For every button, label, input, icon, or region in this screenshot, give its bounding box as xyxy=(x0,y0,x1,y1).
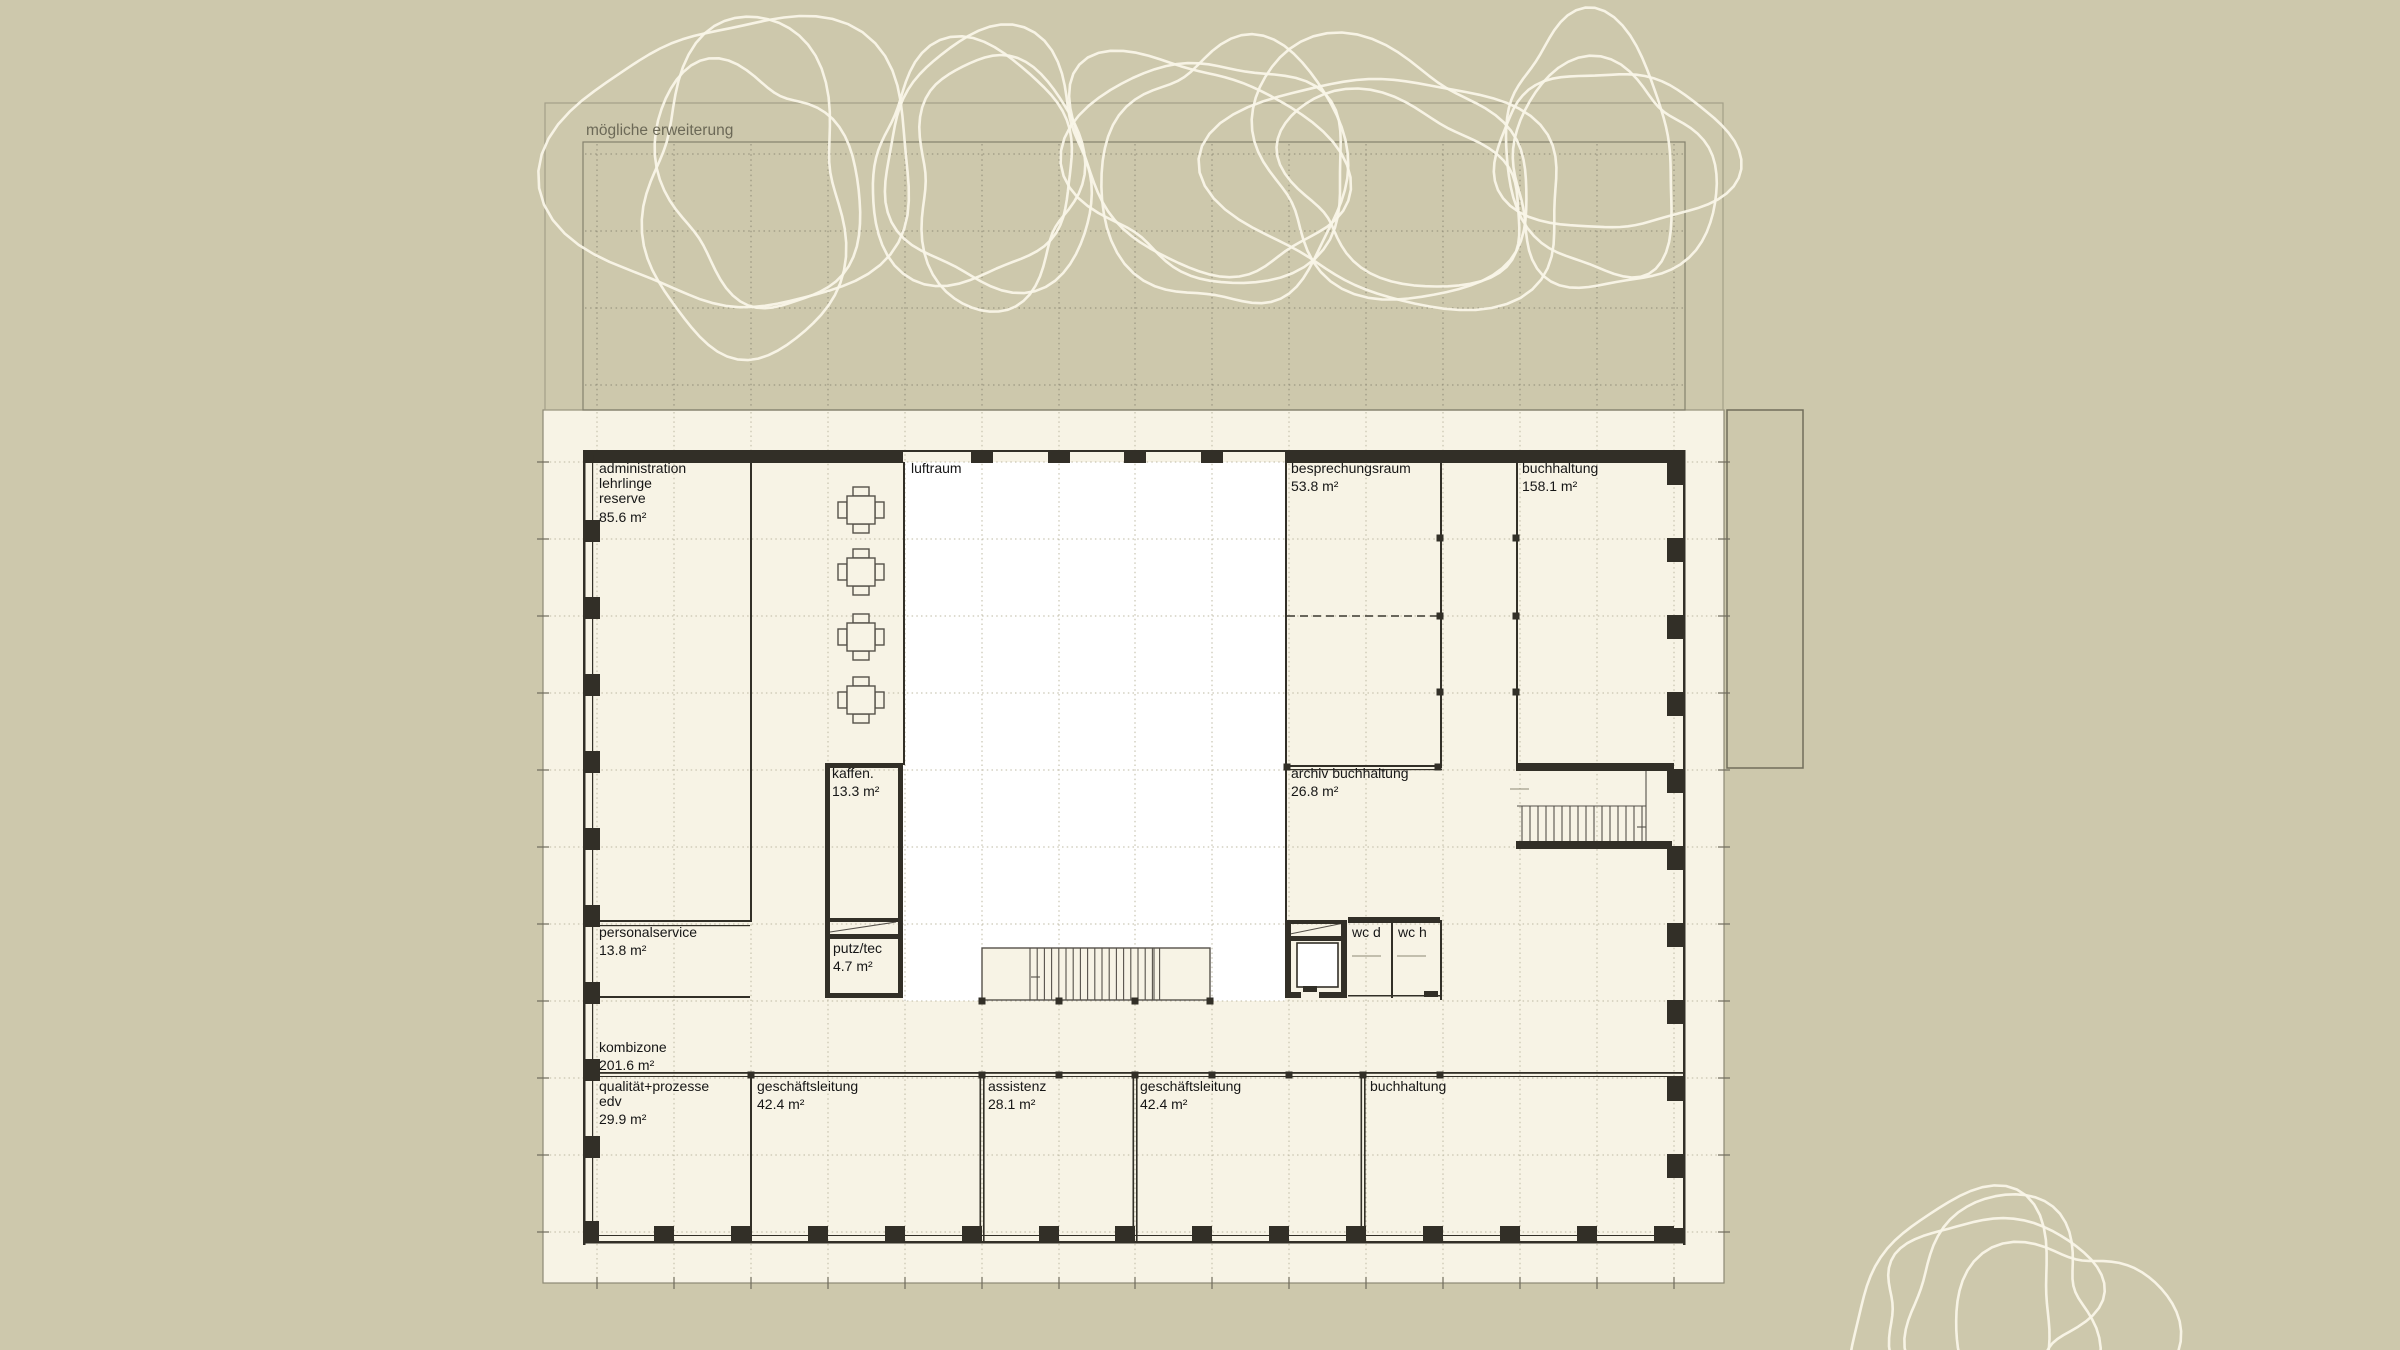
wall xyxy=(1115,1226,1135,1242)
room-name: buchhaltung xyxy=(1370,1079,1446,1094)
room-label-archiv-buchhaltung: archiv buchhaltung 26.8 m² xyxy=(1291,766,1409,799)
wall xyxy=(1435,764,1442,771)
wall xyxy=(584,751,600,773)
wall xyxy=(584,1059,600,1081)
room-name: wc h xyxy=(1398,925,1427,940)
wall xyxy=(748,1072,755,1079)
chair-icon xyxy=(853,677,869,686)
wall xyxy=(1440,920,1442,1000)
wall xyxy=(903,450,1285,452)
wall xyxy=(1516,841,1672,849)
room-label-assistenz: assistenz 28.1 m² xyxy=(988,1079,1046,1112)
wall xyxy=(583,1221,599,1242)
chair-icon xyxy=(875,629,884,645)
chair-icon xyxy=(838,502,847,518)
wall xyxy=(1303,986,1317,992)
chair-icon xyxy=(853,714,869,723)
wall xyxy=(980,1075,982,1243)
room-area-value: 53.8 m² xyxy=(1291,479,1411,494)
tree-scribble xyxy=(1277,89,1520,287)
wall xyxy=(1667,538,1684,562)
tree-scribble xyxy=(919,55,1085,312)
wall xyxy=(750,462,752,922)
wall xyxy=(1192,1226,1212,1242)
wall xyxy=(584,674,600,696)
wall xyxy=(1667,846,1684,870)
wall xyxy=(979,998,986,1005)
wall xyxy=(1360,1072,1367,1079)
wall xyxy=(1654,1226,1674,1242)
chair-icon xyxy=(838,564,847,580)
room-name: kombizone xyxy=(599,1040,667,1055)
wall xyxy=(1667,923,1684,947)
wall xyxy=(1285,920,1347,924)
wall xyxy=(1667,1154,1684,1178)
room-area-value: 42.4 m² xyxy=(757,1097,858,1112)
room-label-personalservice: personalservice 13.8 m² xyxy=(599,925,697,958)
wall xyxy=(1423,1226,1443,1242)
wall xyxy=(825,918,903,922)
tree-scribble xyxy=(1849,1185,2050,1350)
table-icon xyxy=(847,558,875,586)
wall xyxy=(1513,535,1520,542)
wall xyxy=(1361,1075,1363,1243)
room-name: kaffen. xyxy=(832,766,879,781)
room-label-geschaeftsleitung-rechts: geschäftsleitung 42.4 m² xyxy=(1140,1079,1241,1112)
extension-outer-outline xyxy=(545,103,1723,410)
wall xyxy=(1667,1000,1684,1024)
chair-icon xyxy=(853,549,869,558)
wall xyxy=(1285,922,1291,998)
wall xyxy=(1667,769,1684,793)
wall xyxy=(1513,689,1520,696)
wall xyxy=(971,450,993,463)
wall xyxy=(1286,1072,1293,1079)
wall xyxy=(808,1226,828,1242)
wall xyxy=(731,1226,751,1242)
chair-icon xyxy=(875,564,884,580)
extension-label: mögliche erweiterung xyxy=(586,122,733,140)
wall xyxy=(1437,535,1444,542)
chair-icon xyxy=(838,692,847,708)
wall xyxy=(1132,998,1139,1005)
room-label-luftraum: luftraum xyxy=(911,461,962,476)
room-area-value: 13.8 m² xyxy=(599,943,697,958)
room-name: besprechungsraum xyxy=(1291,461,1411,476)
room-label-qualitaet-prozesse-edv: qualität+prozesse edv 29.9 m² xyxy=(599,1079,709,1128)
wall xyxy=(1437,613,1444,620)
room-name: luftraum xyxy=(911,461,962,476)
room-name: geschäftsleitung xyxy=(757,1079,858,1094)
room-area-value: 29.9 m² xyxy=(599,1112,709,1127)
table-icon xyxy=(847,496,875,524)
wall xyxy=(1667,461,1684,485)
annex-outline xyxy=(1727,410,1803,768)
chair-icon xyxy=(853,586,869,595)
wall xyxy=(584,520,600,542)
wall xyxy=(1285,992,1301,998)
wall xyxy=(1201,450,1223,463)
wall xyxy=(1667,615,1684,639)
wall xyxy=(983,1075,985,1243)
wall xyxy=(1577,1226,1597,1242)
wall xyxy=(979,1072,986,1079)
floor-plan-drawing xyxy=(0,0,2400,1350)
wall xyxy=(1516,763,1674,771)
wall xyxy=(583,996,750,998)
wall xyxy=(1348,917,1440,923)
room-area-value: 158.1 m² xyxy=(1522,479,1598,494)
room-label-administration: administration lehrlinge reserve 85.6 m² xyxy=(599,461,686,525)
elevator-cab-icon xyxy=(1297,943,1338,987)
wall xyxy=(885,1226,905,1242)
floor-plan-canvas: mögliche erweiterung administration lehr… xyxy=(0,0,2400,1350)
wall xyxy=(1667,1077,1684,1101)
room-label-buchhaltung-eg: buchhaltung xyxy=(1370,1079,1446,1094)
wall xyxy=(1667,692,1684,716)
wall xyxy=(1346,1226,1366,1242)
wall xyxy=(1133,1075,1135,1243)
stair-icon xyxy=(982,948,1210,1000)
wall xyxy=(903,462,905,765)
room-name: buchhaltung xyxy=(1522,461,1598,476)
wall xyxy=(1500,1226,1520,1242)
chair-icon xyxy=(853,614,869,623)
room-label-wc-h: wc h xyxy=(1398,925,1427,940)
tree-scribble xyxy=(1956,1242,2181,1350)
wall xyxy=(584,982,600,1004)
wall xyxy=(654,1226,674,1242)
wall xyxy=(825,763,830,998)
room-name: qualität+prozesse edv xyxy=(599,1079,709,1109)
wall xyxy=(583,920,750,922)
wall xyxy=(1437,689,1444,696)
wall xyxy=(1124,450,1146,463)
wall xyxy=(584,1136,600,1158)
wall xyxy=(1424,991,1438,997)
room-area-value: 85.6 m² xyxy=(599,510,686,525)
room-area-value: 42.4 m² xyxy=(1140,1097,1241,1112)
room-name: putz/tec xyxy=(833,941,882,956)
table-icon xyxy=(847,686,875,714)
luftraum-void-area xyxy=(903,462,1285,1001)
wall xyxy=(1207,998,1214,1005)
chair-icon xyxy=(838,629,847,645)
wall xyxy=(898,763,903,998)
room-name: administration lehrlinge reserve xyxy=(599,461,686,507)
room-area-value: 201.6 m² xyxy=(599,1058,667,1073)
wall xyxy=(750,1075,752,1243)
wall xyxy=(825,993,903,998)
room-area-value: 26.8 m² xyxy=(1291,784,1409,799)
room-label-wc-d: wc d xyxy=(1352,925,1381,940)
table-icon xyxy=(847,623,875,651)
wall xyxy=(1285,462,1287,922)
room-area-value: 4.7 m² xyxy=(833,959,882,974)
wall xyxy=(1364,1075,1366,1243)
wall xyxy=(1132,1072,1139,1079)
wall xyxy=(584,905,600,927)
wall xyxy=(584,828,600,850)
room-area-value: 28.1 m² xyxy=(988,1097,1046,1112)
wall xyxy=(1048,450,1070,463)
room-name: wc d xyxy=(1352,925,1381,940)
tree-scribble xyxy=(1513,56,1717,288)
room-name: geschäftsleitung xyxy=(1140,1079,1241,1094)
wall xyxy=(1319,992,1347,998)
room-label-kombizone: kombizone 201.6 m² xyxy=(599,1040,667,1073)
room-label-besprechungsraum: besprechungsraum 53.8 m² xyxy=(1291,461,1411,494)
wall xyxy=(1513,613,1520,620)
chair-icon xyxy=(875,692,884,708)
room-name: personalservice xyxy=(599,925,697,940)
room-label-kaffen: kaffen. 13.3 m² xyxy=(832,766,879,799)
chair-icon xyxy=(853,487,869,496)
room-label-geschaeftsleitung-links: geschäftsleitung 42.4 m² xyxy=(757,1079,858,1112)
wall xyxy=(1056,998,1063,1005)
wall xyxy=(1269,1226,1289,1242)
tree-scribble xyxy=(1252,33,1527,300)
room-label-putz-tec: putz/tec 4.7 m² xyxy=(833,941,882,974)
chair-icon xyxy=(853,524,869,533)
wall xyxy=(1391,922,1393,998)
room-name: archiv buchhaltung xyxy=(1291,766,1409,781)
room-label-buchhaltung-og: buchhaltung 158.1 m² xyxy=(1522,461,1598,494)
chair-icon xyxy=(853,651,869,660)
wall xyxy=(1285,936,1347,941)
wall xyxy=(1284,764,1291,771)
chair-icon xyxy=(875,502,884,518)
wall xyxy=(1136,1075,1138,1243)
wall xyxy=(1341,922,1347,998)
wall xyxy=(962,1226,982,1242)
wall xyxy=(584,597,600,619)
wall xyxy=(825,934,903,939)
wall xyxy=(1039,1226,1059,1242)
room-name: assistenz xyxy=(988,1079,1046,1094)
wall xyxy=(1056,1072,1063,1079)
room-area-value: 13.3 m² xyxy=(832,784,879,799)
